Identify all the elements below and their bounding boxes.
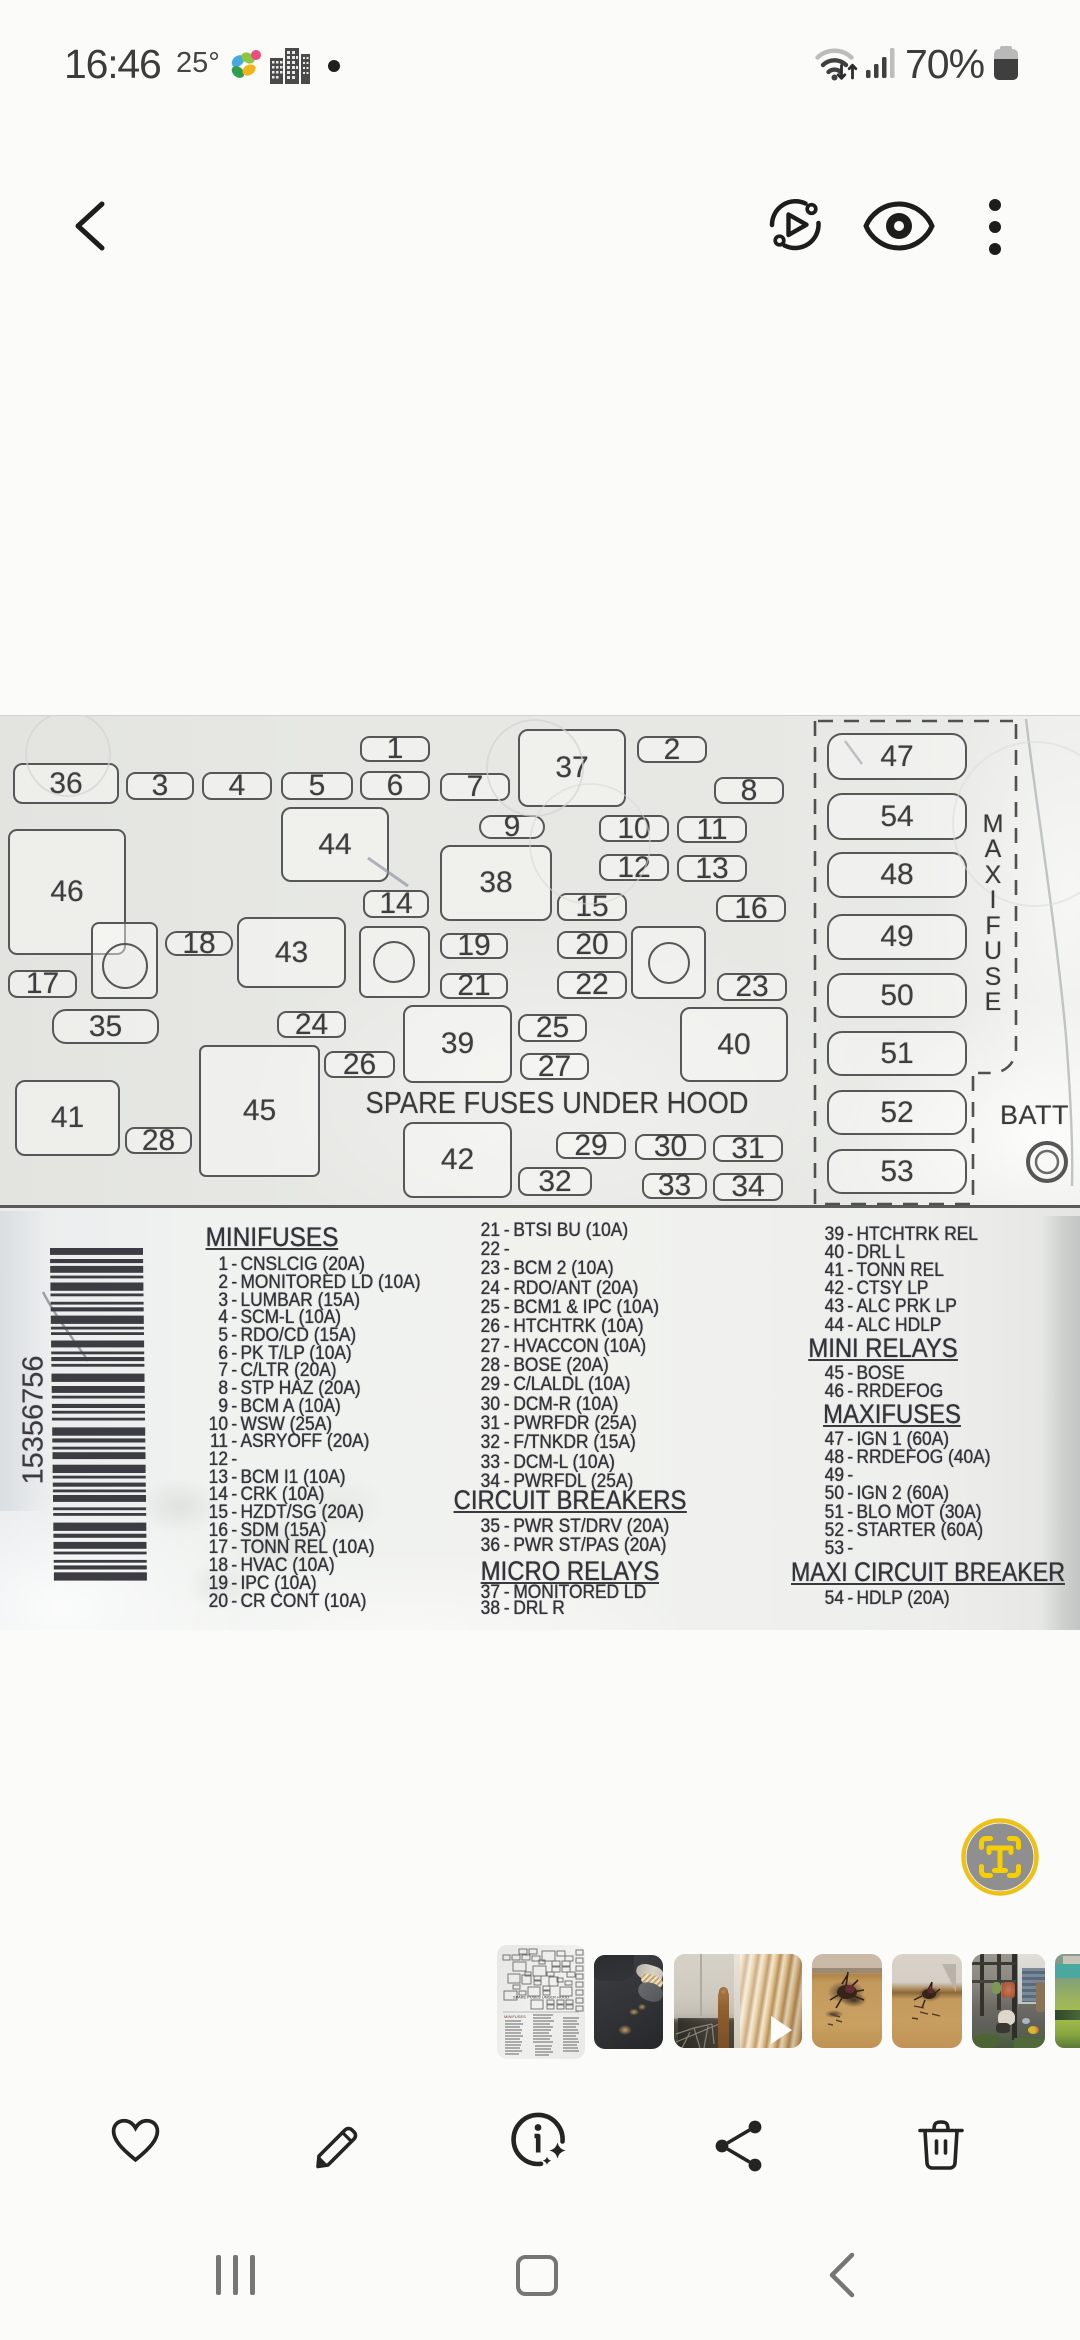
svg-text:SPARE FUSES UNDER HOOD: SPARE FUSES UNDER HOOD xyxy=(513,1995,569,2000)
svg-text:MINIFUSES: MINIFUSES xyxy=(504,2014,526,2019)
